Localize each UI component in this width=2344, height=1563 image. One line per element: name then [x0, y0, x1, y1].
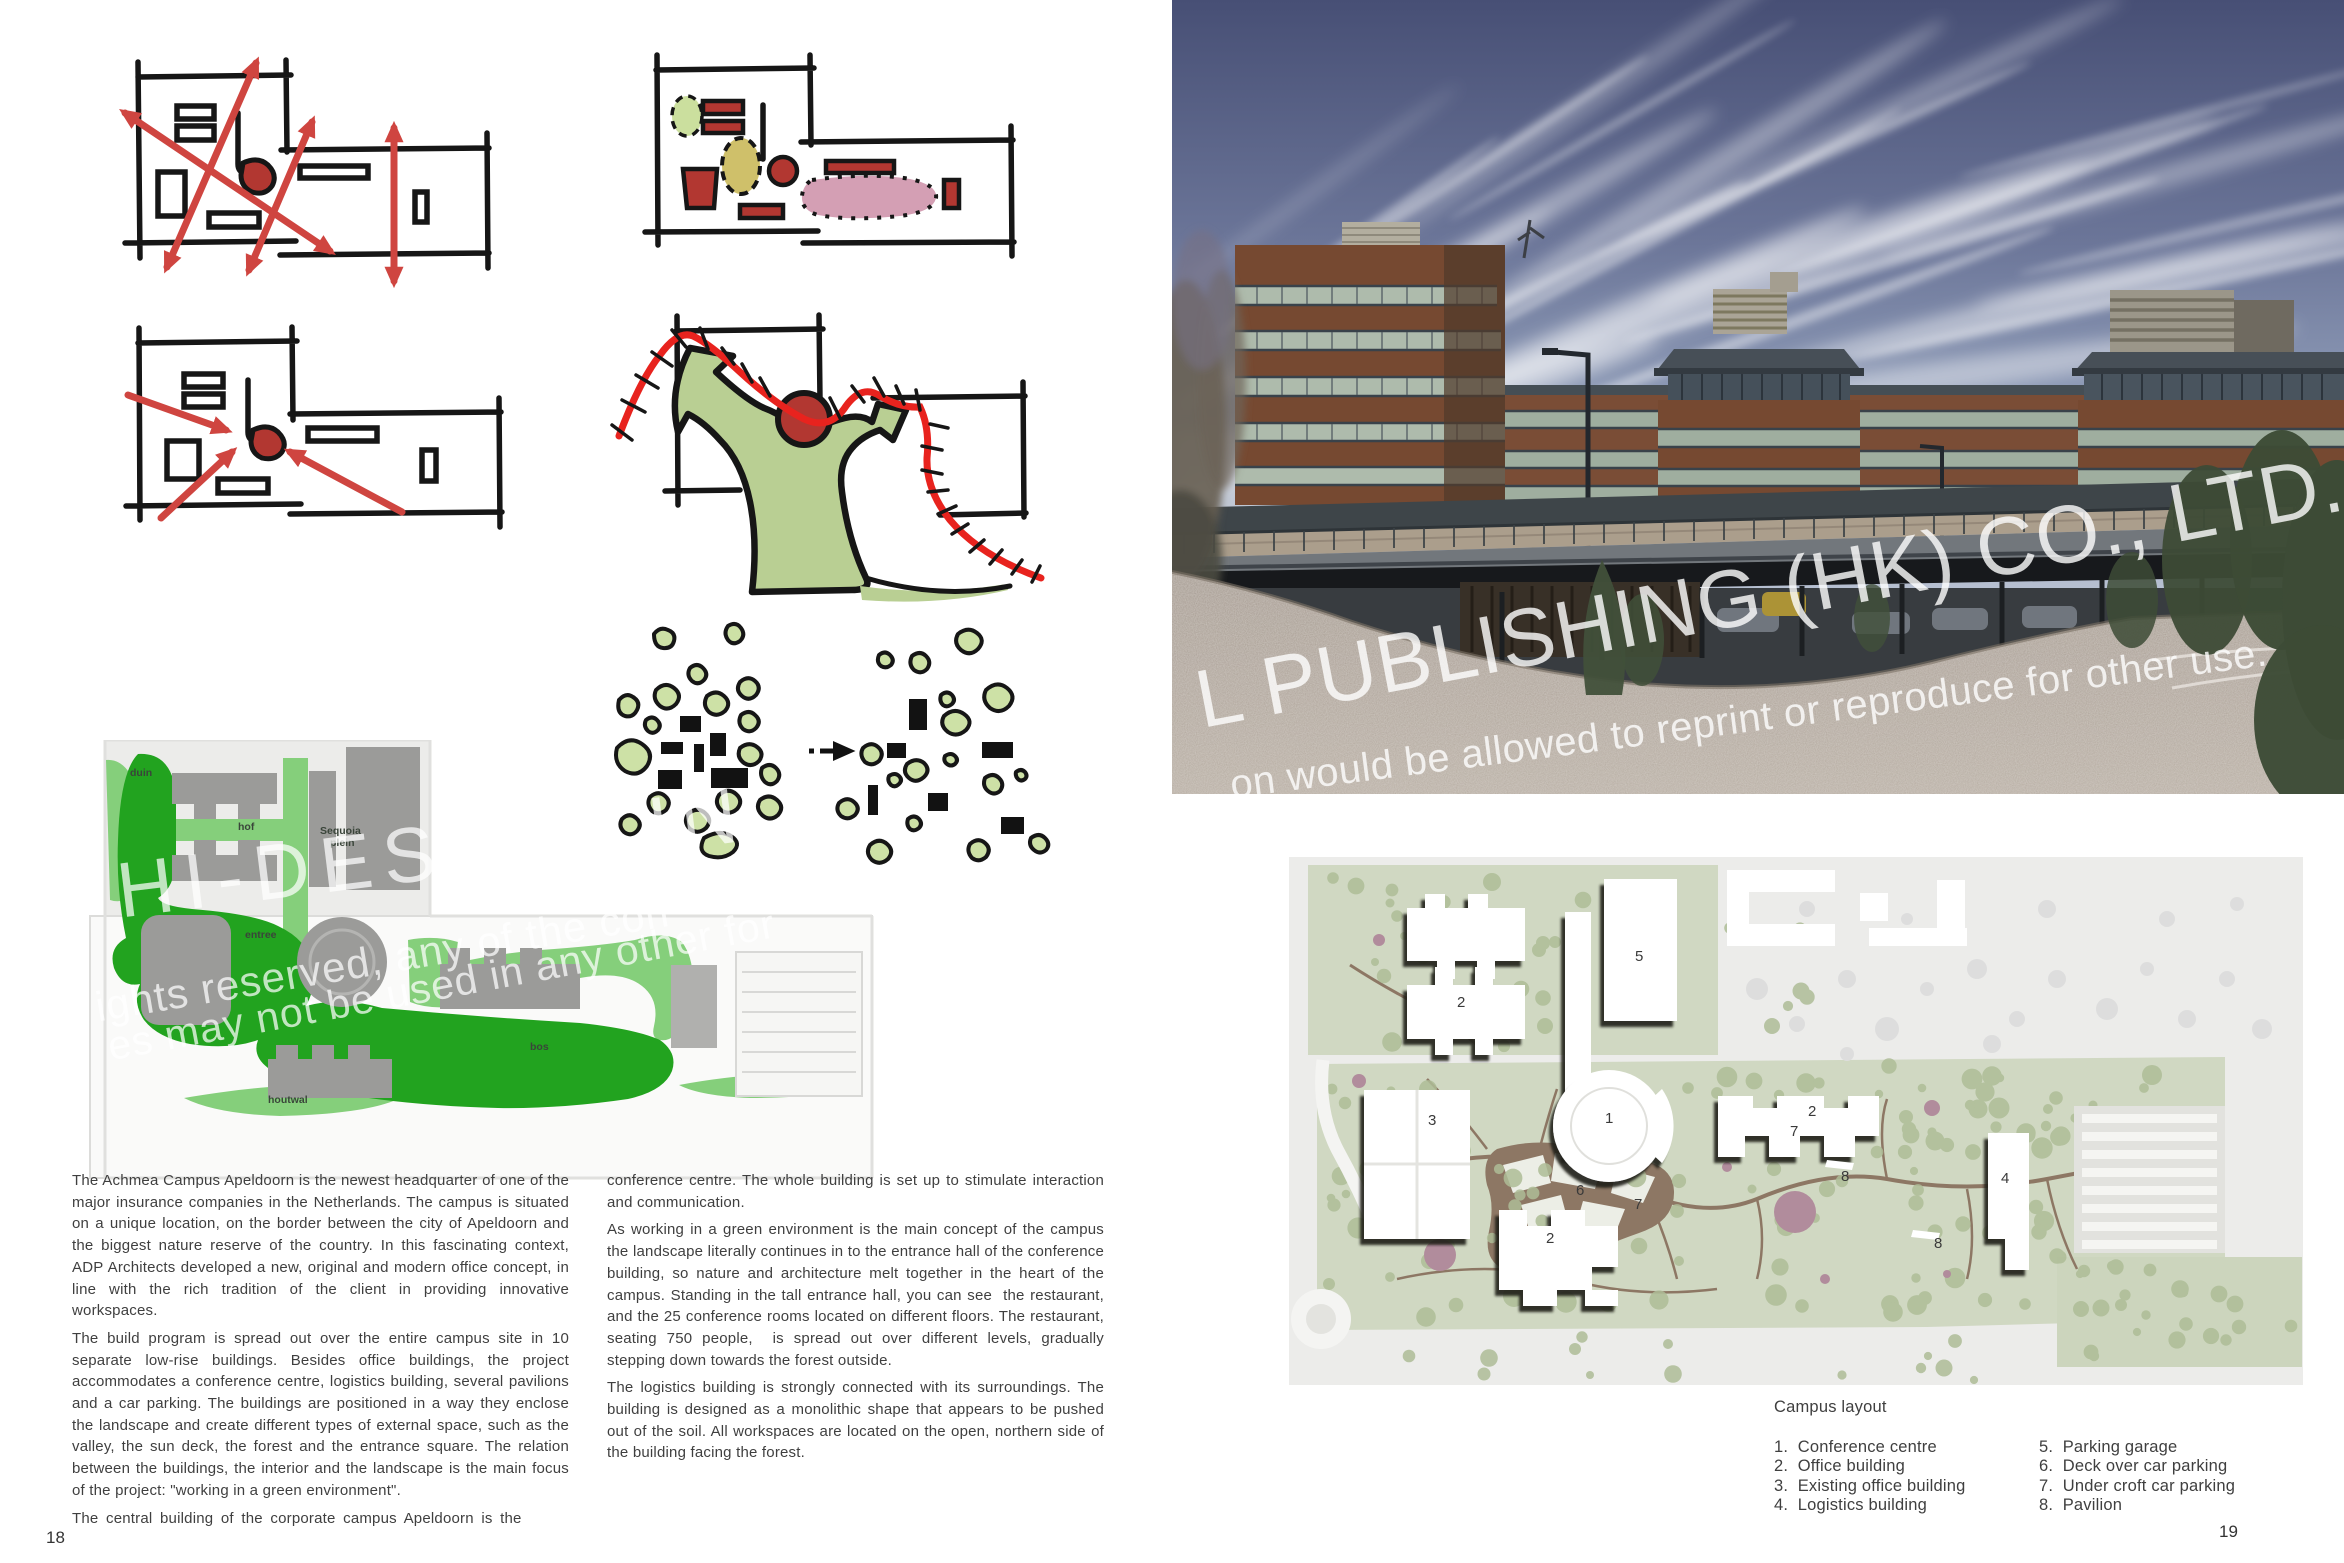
svg-text:2: 2 [1546, 1230, 1554, 1247]
svg-text:4: 4 [2001, 1170, 2009, 1187]
svg-text:7: 7 [1634, 1196, 1642, 1213]
svg-text:1: 1 [1605, 1110, 1613, 1127]
svg-text:6: 6 [1576, 1182, 1584, 1199]
svg-text:houtwal: houtwal [268, 1094, 308, 1106]
svg-text:bos: bos [530, 1041, 549, 1053]
svg-text:2: 2 [1808, 1103, 1816, 1120]
svg-text:3: 3 [1428, 1112, 1436, 1129]
svg-text:8: 8 [1934, 1235, 1942, 1252]
svg-text:5: 5 [1635, 948, 1643, 965]
svg-text:entree: entree [245, 929, 277, 941]
svg-text:duin: duin [130, 767, 152, 779]
svg-text:2: 2 [1457, 994, 1465, 1011]
svg-text:7: 7 [1790, 1123, 1798, 1140]
svg-text:8: 8 [1841, 1168, 1849, 1185]
